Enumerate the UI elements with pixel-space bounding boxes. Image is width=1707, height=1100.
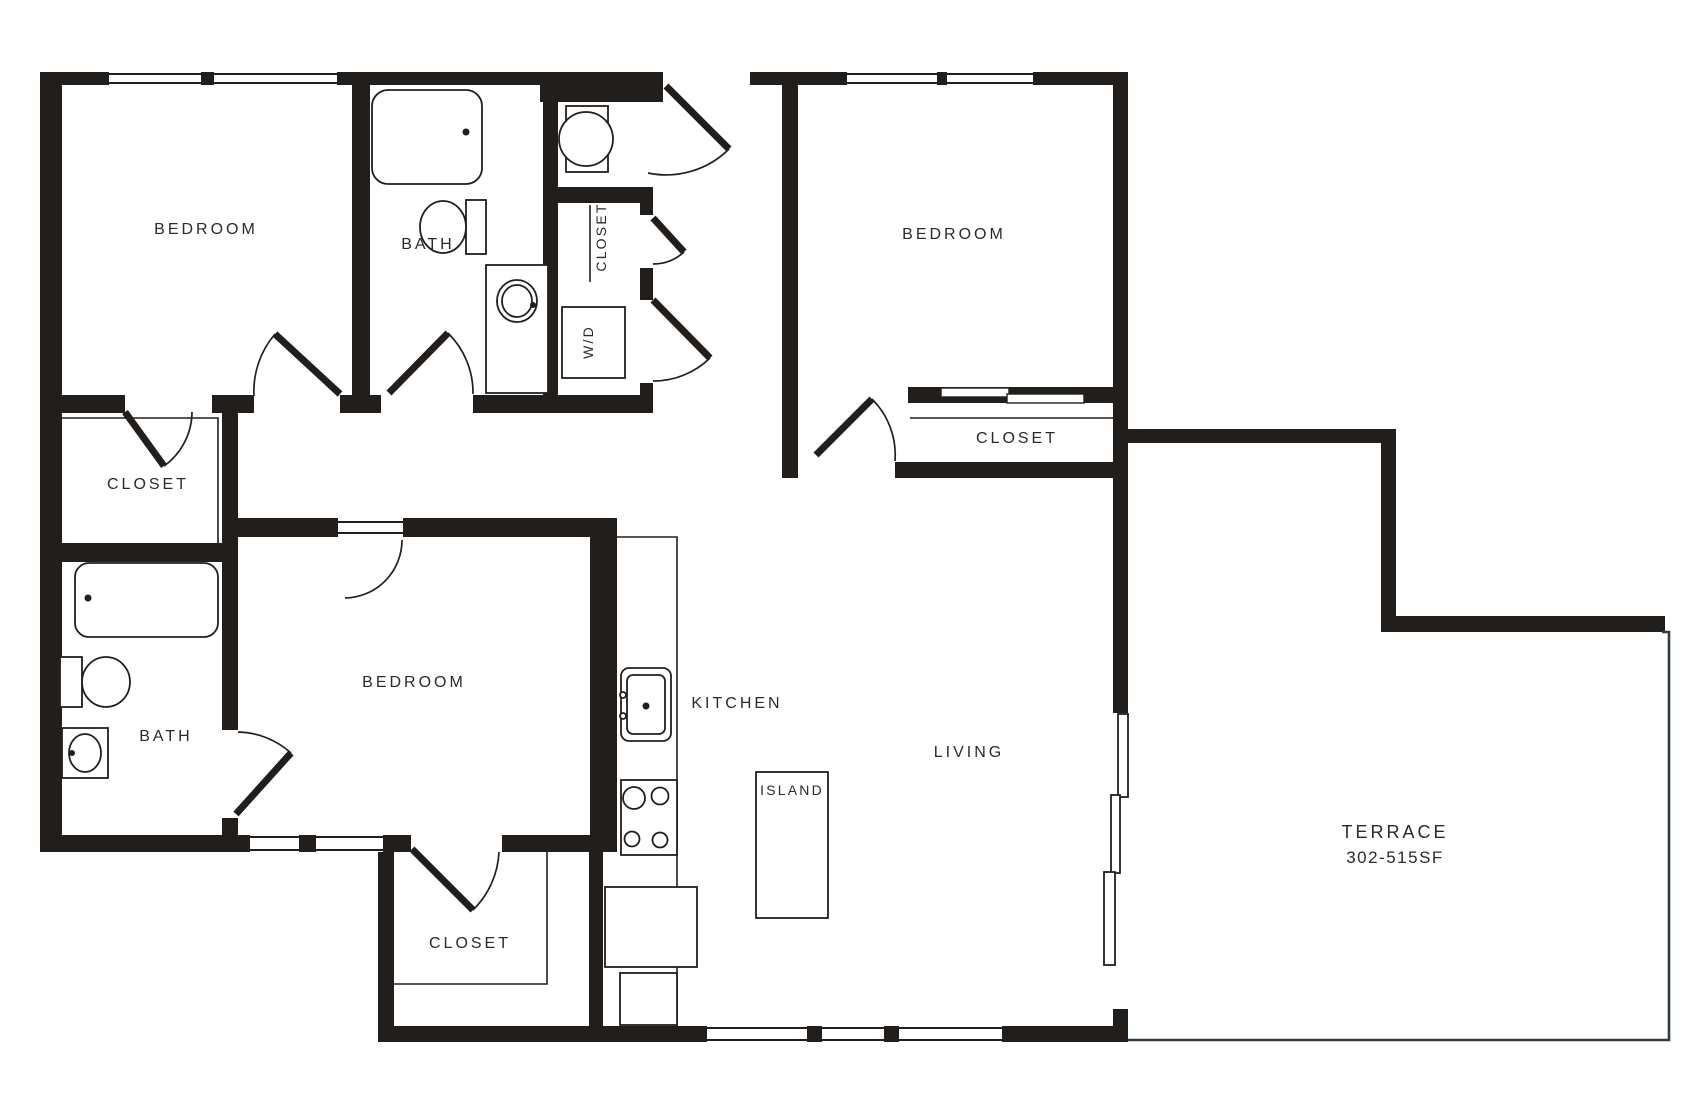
- sliding-door-icon: [1104, 714, 1128, 965]
- label-bedroom-top-right: BEDROOM: [902, 226, 1006, 243]
- label-bath-top: BATH: [401, 236, 454, 253]
- label-closet-niche: CLOSET: [593, 202, 609, 271]
- label-bath-bottom: BATH: [139, 728, 192, 745]
- floor-plan-page: BEDROOM BATH CLOSET W/D BEDROOM CLOSET C…: [0, 0, 1707, 1100]
- label-bedroom-bottom: BEDROOM: [362, 674, 466, 691]
- corner-sink-icon: [62, 728, 108, 778]
- stove-icon: [621, 780, 677, 855]
- label-terrace-area: 302-515SF: [1346, 848, 1444, 867]
- walls: [40, 72, 1665, 1042]
- label-closet-bottom: CLOSET: [429, 935, 511, 952]
- label-kitchen: KITCHEN: [691, 695, 782, 712]
- kitchen-sink-icon: [620, 668, 671, 741]
- label-bedroom-top-left: BEDROOM: [154, 221, 258, 238]
- bathtub-icon: [372, 90, 482, 184]
- water-heater-icon: [559, 106, 613, 172]
- label-closet-mid-left: CLOSET: [107, 476, 189, 493]
- label-closet-top-right: CLOSET: [976, 430, 1058, 447]
- toilet-icon: [60, 657, 130, 707]
- refrigerator-icon: [605, 887, 697, 967]
- bathtub-icon: [75, 563, 218, 637]
- label-living: LIVING: [934, 744, 1004, 761]
- label-laundry: W/D: [580, 325, 596, 359]
- label-terrace: TERRACE: [1341, 822, 1448, 842]
- vanity-sink-icon: [486, 265, 548, 393]
- base-cabinet-icon: [620, 973, 677, 1025]
- label-island: ISLAND: [760, 782, 824, 798]
- floor-plan-svg: BEDROOM BATH CLOSET W/D BEDROOM CLOSET C…: [0, 0, 1707, 1100]
